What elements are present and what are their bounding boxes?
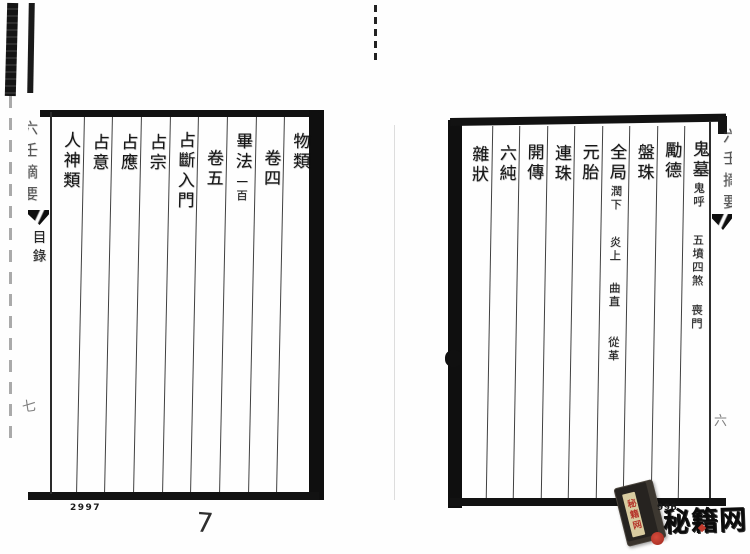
toc-entry: 雜狀 <box>470 145 488 185</box>
watermark-seal-icon <box>651 532 664 545</box>
scan-binding-artifact <box>27 3 35 93</box>
toc-entry: 占宗 <box>147 133 165 173</box>
toc-column: 鬼墓鬼呼五墳四煞喪門 <box>678 126 712 498</box>
toc-entry: 盤珠 <box>635 143 653 183</box>
toc-entry: 勵德 <box>663 141 681 181</box>
right-spine-column: 六壬摘要 <box>712 122 732 500</box>
toc-subentry: 從革 <box>606 336 618 363</box>
toc-entry: 卷五 <box>204 149 222 189</box>
toc-entry: 占斷入門 <box>175 131 194 211</box>
toc-entry: 連珠 <box>552 144 570 184</box>
fishtail-mark-icon <box>28 210 49 225</box>
toc-subentry: 五墳四煞 <box>690 234 702 288</box>
watermark-book-label: 秘籍网 <box>622 492 645 538</box>
leaf-number-right: 六 <box>714 410 727 429</box>
toc-entry: 六純 <box>497 144 515 184</box>
toc-entry: 開傳 <box>525 143 543 183</box>
toc-subentry: 曲直 <box>607 282 619 309</box>
center-fold-mark <box>374 5 377 60</box>
right-page: 六壬摘要 六 鬼墓鬼呼五墳四煞喪門勵德盤珠全局潤下炎上曲直從革元胎連珠開傳六純雜… <box>448 118 750 510</box>
toc-entry: 畢法 <box>233 132 251 172</box>
handwritten-page-number: 7 <box>195 507 215 539</box>
toc-subentry: 炎上 <box>608 236 620 263</box>
spine-book-title-partial: 六壬摘要 <box>28 120 36 208</box>
toc-entry: 全局 <box>608 143 626 183</box>
spine-section-label: 目錄 <box>31 230 45 267</box>
scan-binding-artifact <box>5 3 18 96</box>
watermark-mijiwang: 秘籍网 秘籍网 <box>610 479 750 554</box>
toc-entry: 鬼墓 <box>690 140 708 180</box>
toc-entry: 卷四 <box>262 149 280 189</box>
toc-entry: 元胎 <box>580 143 598 183</box>
page-border-top <box>40 110 324 117</box>
toc-subentry: 一百 <box>234 176 246 203</box>
toc-subentry: 潤下 <box>609 185 621 212</box>
page-border-top <box>450 114 726 126</box>
toc-entry: 占應 <box>119 133 137 173</box>
fishtail-mark-icon <box>712 214 732 230</box>
toc-columns-left: 物類卷四畢法一百卷五占斷入門占宗占應占意人神類 <box>48 117 313 492</box>
toc-subentry: 喪門 <box>689 304 701 331</box>
page-border-bottom <box>28 492 319 500</box>
toc-subentry: 鬼呼 <box>691 182 703 209</box>
page-number-left: 2997 <box>70 503 101 513</box>
toc-entry: 物類 <box>291 132 309 172</box>
left-page: 六壬摘要 目錄 物類卷四畢法一百卷五占斷入門占宗占應占意人神類 <box>28 110 324 502</box>
toc-entry: 占意 <box>90 133 108 173</box>
scan-edge-streak <box>9 96 12 441</box>
spine-book-title-partial: 六壬摘要 <box>721 128 732 216</box>
gutter-shadow-line <box>394 125 395 500</box>
toc-entry: 人神類 <box>61 131 79 191</box>
page-number-right: 996 <box>657 503 677 513</box>
ink-blot <box>445 350 462 367</box>
toc-columns-right: 鬼墓鬼呼五墳四煞喪門勵德盤珠全局潤下炎上曲直從革元胎連珠開傳六純雜狀 <box>459 126 712 498</box>
leaf-number-left: 七 <box>21 395 38 417</box>
left-spine-column: 六壬摘要 目錄 <box>28 114 49 492</box>
scanned-book-spread: 六壬摘要 目錄 物類卷四畢法一百卷五占斷入門占宗占應占意人神類 六壬摘要 六 鬼… <box>0 0 750 554</box>
